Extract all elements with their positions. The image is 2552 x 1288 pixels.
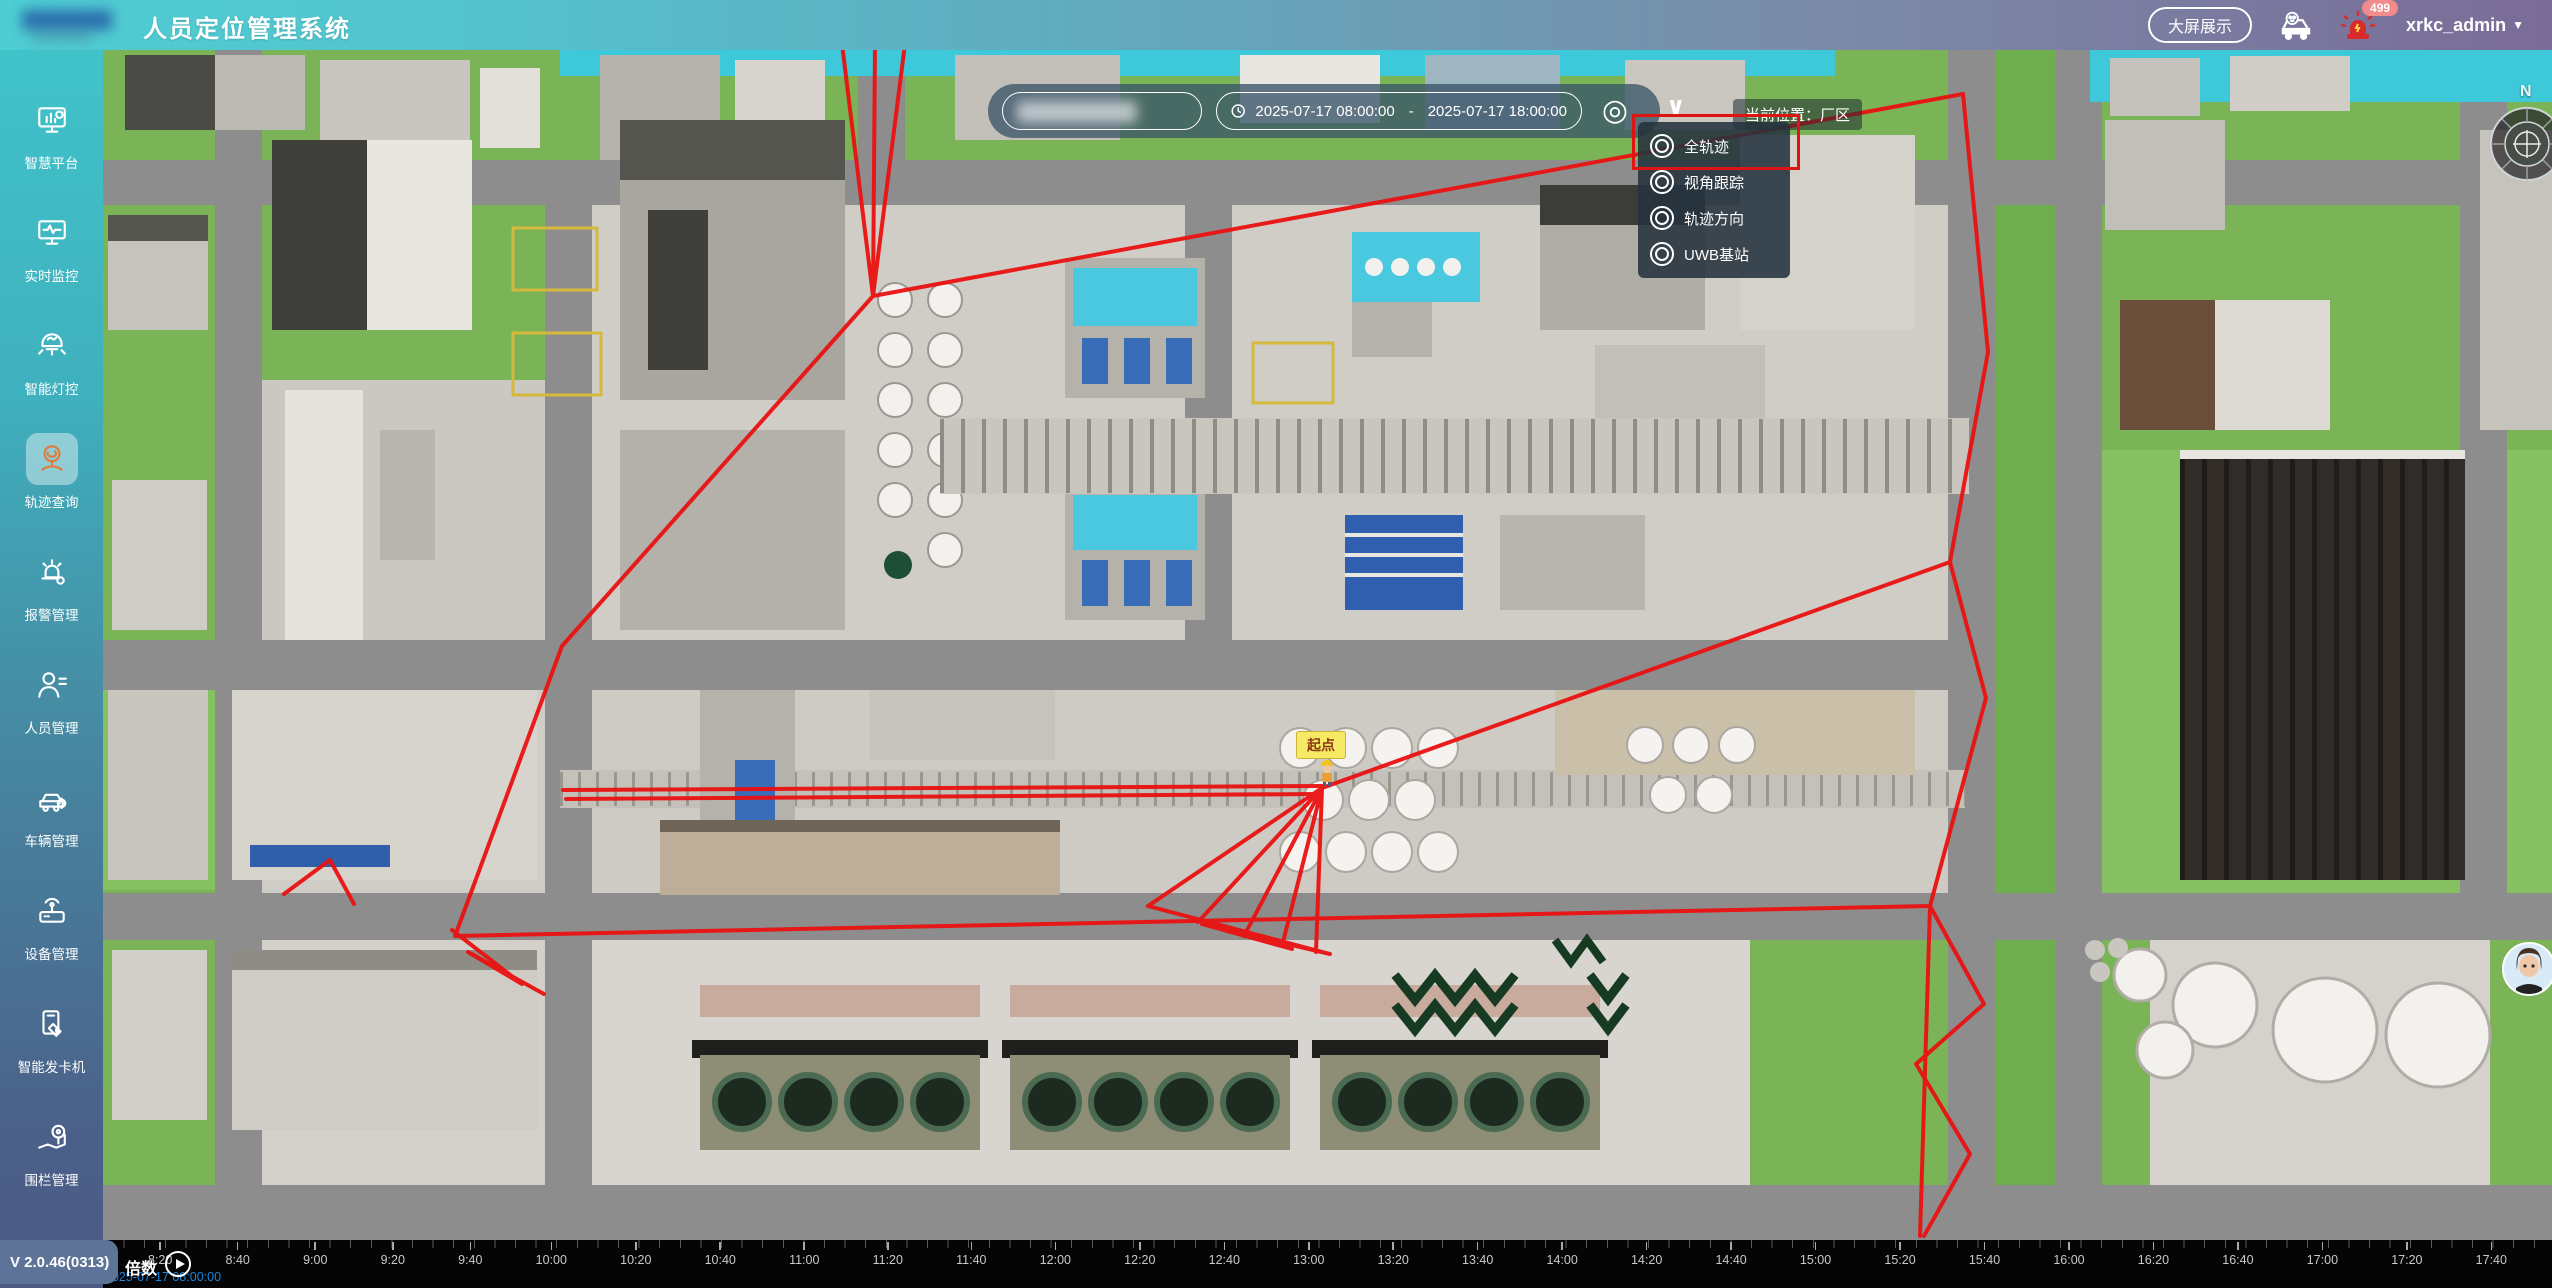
query-locate-button[interactable]: ◎ — [1596, 92, 1634, 130]
sidebar-item-label: 智慧平台 — [25, 152, 79, 172]
timeline-tick[interactable]: 10:40 — [705, 1242, 736, 1267]
compass-control[interactable] — [2487, 104, 2552, 184]
timeline-tick[interactable]: 15:00 — [1800, 1242, 1831, 1267]
timeline-tick[interactable]: 9:00 — [303, 1242, 327, 1267]
smart-platform-icon — [32, 100, 72, 140]
menu-item-label: UWB基站 — [1684, 244, 1749, 265]
date-start: 2025-07-17 08:00:00 — [1255, 103, 1394, 120]
sidebar-item-personnel-management[interactable]: 人员管理 — [6, 659, 98, 737]
alarm-management-icon — [32, 552, 72, 592]
timeline-tick[interactable]: 17:40 — [2476, 1242, 2507, 1267]
timeline-tick[interactable]: 13:40 — [1462, 1242, 1493, 1267]
sidebar-item-label: 报警管理 — [25, 604, 79, 624]
chevron-down-icon: ▼ — [2512, 18, 2524, 32]
timeline-tick[interactable]: 14:20 — [1631, 1242, 1662, 1267]
sidebar-item-trajectory-query[interactable]: 轨迹查询 — [6, 433, 98, 511]
device-management-icon — [32, 891, 72, 931]
sidebar-nav: 智慧平台实时监控智能灯控轨迹查询报警管理人员管理车辆管理设备管理智能发卡机围栏管… — [0, 50, 103, 1288]
timeline-tick[interactable]: 15:40 — [1969, 1242, 2000, 1267]
sidebar-item-label: 实时监控 — [25, 265, 79, 285]
playback-current-time: 2025-07-17 08:00:00 — [105, 1270, 221, 1284]
sidebar-item-smart-card-dispenser[interactable]: 智能发卡机 — [6, 998, 98, 1076]
sidebar-item-smart-lighting[interactable]: 智能灯控 — [6, 320, 98, 398]
full-trajectory-icon — [1650, 134, 1674, 158]
timeline-tick[interactable]: 14:00 — [1547, 1242, 1578, 1267]
fence-management-icon — [32, 1117, 72, 1157]
timeline-tick[interactable]: 17:20 — [2391, 1242, 2422, 1267]
timeline-tick[interactable]: 12:20 — [1124, 1242, 1155, 1267]
timeline-tick[interactable]: 13:00 — [1293, 1242, 1324, 1267]
timeline-tick-labels: 8:208:409:009:209:4010:0010:2010:4011:00… — [148, 1242, 2507, 1267]
smart-card-dispenser-icon — [32, 1004, 72, 1044]
sidebar-item-smart-platform[interactable]: 智慧平台 — [6, 94, 98, 172]
timeline-tick[interactable]: 11:00 — [789, 1242, 819, 1267]
realtime-monitor-icon — [32, 213, 72, 253]
menu-item-label: 轨迹方向 — [1684, 208, 1744, 229]
menu-item-full-trajectory[interactable]: 全轨迹 — [1638, 128, 1790, 164]
personnel-management-icon — [32, 665, 72, 705]
start-point-label: 起点 — [1296, 731, 1346, 759]
big-screen-button[interactable]: 大屏展示 — [2148, 7, 2252, 43]
clock-icon — [1231, 102, 1245, 120]
compass-north-label: N — [2520, 83, 2532, 101]
playback-timeline[interactable]: 8:208:409:009:209:4010:0010:2010:4011:00… — [103, 1240, 2552, 1288]
smart-lighting-icon — [32, 326, 72, 366]
timeline-tick[interactable]: 16:40 — [2222, 1242, 2253, 1267]
menu-item-label: 全轨迹 — [1684, 136, 1729, 157]
app-window: 人员定位管理系统 大屏展示 499 — [0, 0, 2552, 1288]
timeline-tick[interactable]: 11:20 — [873, 1242, 903, 1267]
sidebar-item-realtime-monitor[interactable]: 实时监控 — [6, 207, 98, 285]
timeline-tick[interactable]: 16:00 — [2053, 1242, 2084, 1267]
version-label: V 2.0.46(0313) — [0, 1240, 118, 1284]
assistant-avatar[interactable] — [2502, 942, 2552, 996]
trajectory-query-icon — [32, 439, 72, 479]
timeline-tick[interactable]: 12:00 — [1040, 1242, 1071, 1267]
date-range-picker[interactable]: 2025-07-17 08:00:00 - 2025-07-17 18:00:0… — [1216, 92, 1582, 130]
sidebar-item-label: 设备管理 — [25, 943, 79, 963]
trajectory-toolbar: 2025-07-17 08:00:00 - 2025-07-17 18:00:0… — [988, 84, 1660, 138]
vehicle-management-icon — [32, 778, 72, 818]
trajectory-start-marker[interactable]: 起点 — [1296, 731, 1346, 759]
sidebar-item-label: 车辆管理 — [25, 830, 79, 850]
menu-item-view-tracking[interactable]: 视角跟踪 — [1638, 164, 1790, 200]
timeline-tick[interactable]: 9:20 — [381, 1242, 405, 1267]
timeline-tick[interactable]: 10:20 — [620, 1242, 651, 1267]
playback-speed-label[interactable]: 倍数 — [125, 1255, 157, 1279]
user-menu[interactable]: xrkc_admin ▼ — [2406, 15, 2524, 36]
timeline-tick[interactable]: 16:20 — [2138, 1242, 2169, 1267]
vehicle-monitor-icon[interactable] — [2278, 10, 2314, 40]
trajectory-options-menu: 全轨迹视角跟踪轨迹方向UWB基站 — [1638, 122, 1790, 278]
date-end: 2025-07-17 18:00:00 — [1428, 103, 1567, 120]
sidebar-item-label: 轨迹查询 — [25, 491, 79, 511]
person-search-input[interactable] — [1002, 92, 1202, 130]
timeline-tick[interactable]: 9:40 — [458, 1242, 482, 1267]
sidebar-item-alarm-management[interactable]: 报警管理 — [6, 546, 98, 624]
timeline-tick[interactable]: 17:00 — [2307, 1242, 2338, 1267]
worker-figure-icon — [1318, 758, 1336, 791]
header-bar: 人员定位管理系统 大屏展示 499 — [0, 0, 2552, 50]
menu-item-label: 视角跟踪 — [1684, 172, 1744, 193]
timeline-tick[interactable]: 12:40 — [1209, 1242, 1240, 1267]
timeline-tick[interactable]: 15:20 — [1884, 1242, 1915, 1267]
menu-item-trajectory-direction[interactable]: 轨迹方向 — [1638, 200, 1790, 236]
menu-item-uwb-station[interactable]: UWB基站 — [1638, 236, 1790, 272]
sidebar-item-label: 智能灯控 — [25, 378, 79, 398]
sidebar-item-vehicle-management[interactable]: 车辆管理 — [6, 772, 98, 850]
date-separator: - — [1405, 103, 1418, 120]
timeline-tick[interactable]: 10:00 — [536, 1242, 567, 1267]
username-label: xrkc_admin — [2406, 15, 2506, 36]
app-title: 人员定位管理系统 — [143, 9, 351, 44]
trajectory-direction-icon — [1650, 206, 1674, 230]
timeline-tick[interactable]: 11:40 — [956, 1242, 986, 1267]
uwb-station-icon — [1650, 242, 1674, 266]
company-logo — [14, 4, 126, 46]
play-button[interactable] — [165, 1251, 191, 1277]
sidebar-item-label: 智能发卡机 — [18, 1056, 86, 1076]
sidebar-item-device-management[interactable]: 设备管理 — [6, 885, 98, 963]
timeline-tick[interactable]: 8:40 — [226, 1242, 250, 1267]
facility-map-3d[interactable] — [0, 0, 2552, 1288]
sidebar-item-label: 围栏管理 — [25, 1169, 79, 1189]
alarm-badge-count: 499 — [2362, 0, 2398, 16]
sidebar-item-label: 人员管理 — [25, 717, 79, 737]
timeline-tick[interactable]: 13:20 — [1378, 1242, 1409, 1267]
toolbar-collapse-chevron[interactable]: ∨ — [1666, 92, 1686, 121]
view-tracking-icon — [1650, 170, 1674, 194]
alarm-notifications[interactable]: 499 — [2340, 8, 2380, 42]
sidebar-item-fence-management[interactable]: 围栏管理 — [6, 1111, 98, 1189]
timeline-tick[interactable]: 14:40 — [1715, 1242, 1746, 1267]
